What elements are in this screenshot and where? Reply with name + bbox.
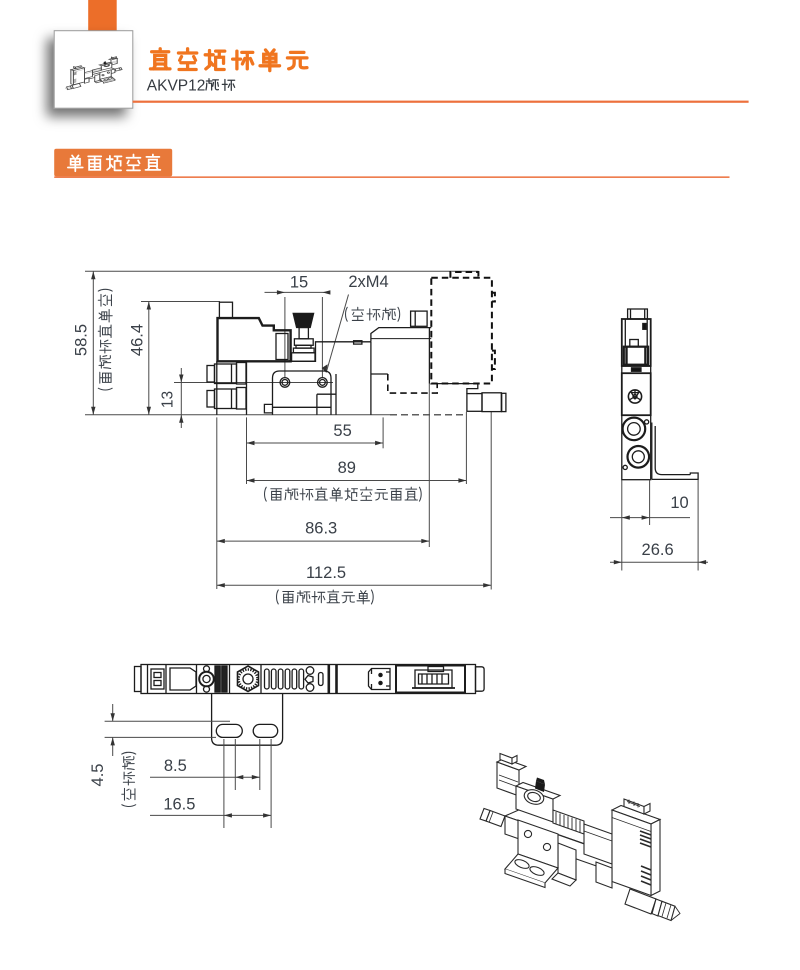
svg-text:8.5: 8.5 <box>164 757 187 775</box>
svg-text:112.5: 112.5 <box>306 564 346 582</box>
svg-text:2xM4: 2xM4 <box>348 273 388 291</box>
svg-text:13: 13 <box>160 391 177 408</box>
svg-text:86.3: 86.3 <box>305 520 337 538</box>
svg-text:46.4: 46.4 <box>129 324 147 356</box>
svg-text:89: 89 <box>338 459 356 477</box>
svg-text:16.5: 16.5 <box>163 795 195 813</box>
svg-text:4.5: 4.5 <box>89 764 107 787</box>
svg-text:AKVP12: AKVP12 <box>147 78 206 95</box>
svg-text:26.6: 26.6 <box>642 541 674 559</box>
svg-text:10: 10 <box>670 494 688 512</box>
svg-text:55: 55 <box>333 422 351 440</box>
svg-text:58.5: 58.5 <box>73 324 91 356</box>
svg-text:15: 15 <box>290 274 308 292</box>
